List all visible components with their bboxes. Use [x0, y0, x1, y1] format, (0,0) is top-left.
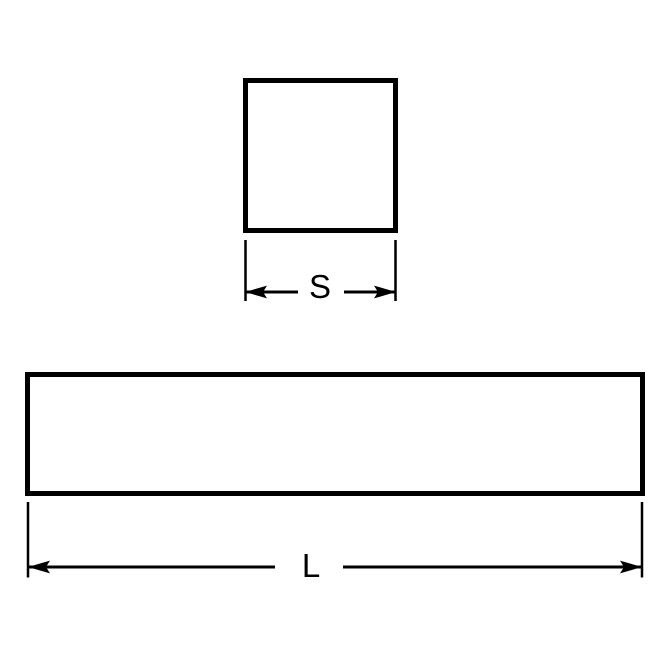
- dimension-drawing: S L: [0, 0, 670, 670]
- side-view: L: [28, 375, 643, 585]
- square-outline: [246, 81, 396, 231]
- cross-section-view: S: [245, 81, 396, 306]
- drawing-canvas: S L: [0, 0, 670, 670]
- s-dimension-label: S: [309, 268, 331, 305]
- bar-outline: [28, 375, 643, 494]
- l-dimension-label: L: [302, 547, 320, 584]
